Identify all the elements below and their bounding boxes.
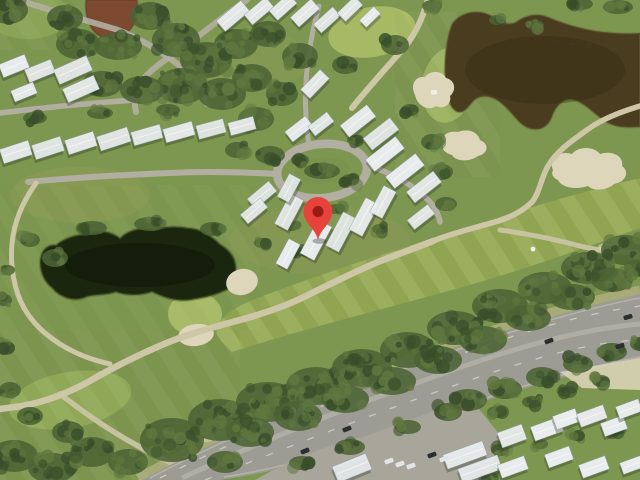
golf-flag-dot bbox=[531, 247, 536, 252]
pond-west-depth bbox=[65, 243, 215, 287]
tree-clump bbox=[17, 407, 43, 425]
map-canvas[interactable]: © 2025 Go bbox=[0, 0, 640, 480]
satellite-imagery: © 2025 Go bbox=[0, 0, 640, 480]
pin-inner-dot bbox=[313, 206, 324, 217]
sand-bunker bbox=[552, 148, 626, 190]
map-attribution: © 2025 Go bbox=[552, 33, 629, 48]
pin-shadow bbox=[313, 238, 327, 244]
tree-clump bbox=[207, 451, 243, 473]
golf-cart-dot bbox=[431, 90, 437, 95]
tree-clump bbox=[603, 0, 633, 14]
tree-clump bbox=[332, 56, 358, 74]
